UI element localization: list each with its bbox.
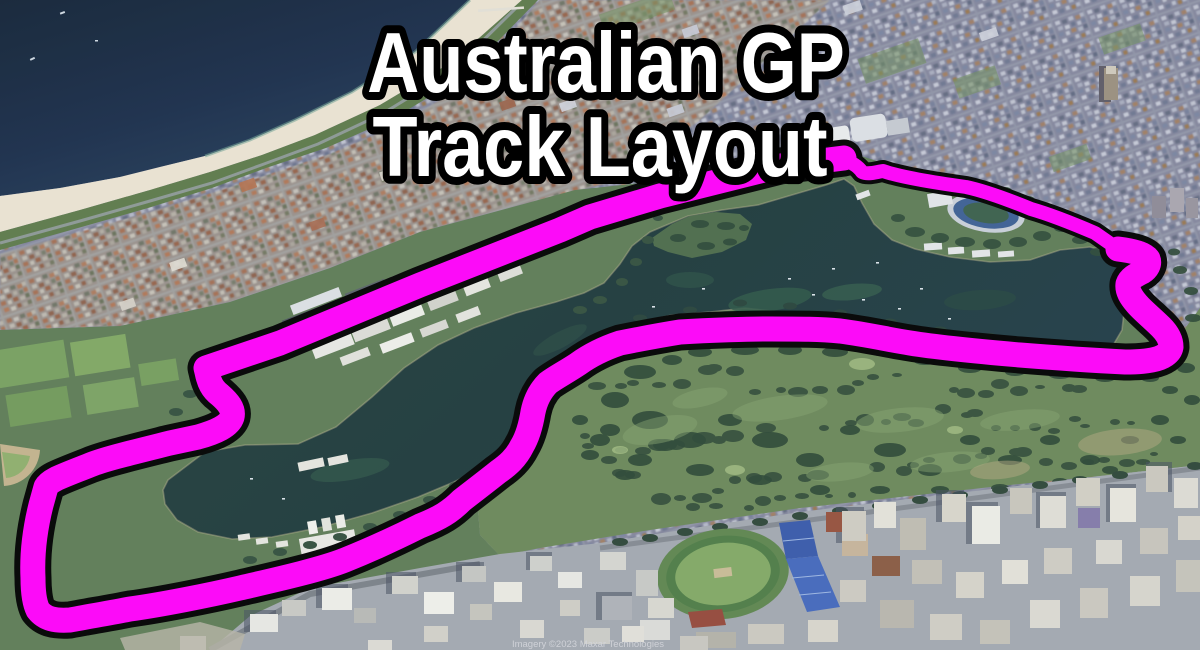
svg-text:Track Layout: Track Layout: [372, 99, 827, 194]
svg-text:Australian GP: Australian GP: [367, 15, 845, 110]
svg-text:Imagery ©2023 Maxar Technologi: Imagery ©2023 Maxar Technologies: [512, 639, 664, 650]
